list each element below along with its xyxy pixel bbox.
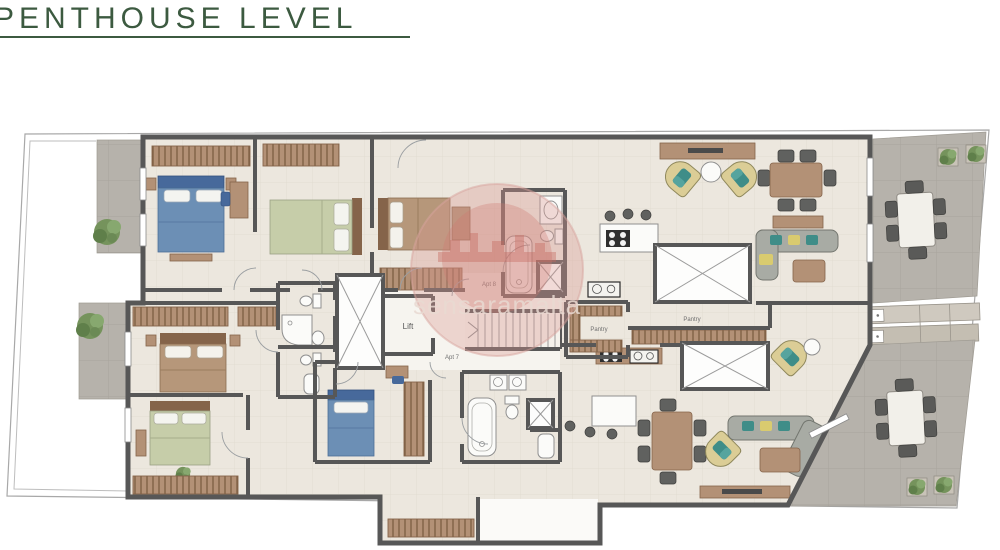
round-coffee-table [701, 162, 721, 182]
coffee-table [760, 448, 800, 472]
bar-stool [605, 211, 615, 221]
kitchen-sink-unit [588, 282, 620, 297]
stool [607, 429, 617, 439]
apt7-label: Apt 7 [445, 355, 460, 361]
pantry-label: Pantry [590, 327, 607, 333]
bed-headboard [160, 333, 226, 344]
bar-stool [623, 209, 633, 219]
shaft-bath-lower [528, 400, 553, 428]
floorplan-drawing: Pantry Pantry [0, 0, 1000, 550]
bed-headboard [378, 198, 388, 250]
bed-headboard [158, 176, 224, 188]
console-table [773, 216, 823, 228]
plant-icon [907, 478, 927, 496]
bar-stool [641, 210, 651, 220]
plant-icon [966, 145, 986, 163]
coffee-table [793, 260, 825, 282]
desk-chair [392, 376, 404, 384]
stool [585, 427, 595, 437]
bed-headboard [352, 198, 362, 255]
plant-icon [938, 148, 958, 166]
shaft-core [337, 275, 383, 368]
sink [312, 331, 324, 345]
watermark-text: sensaramalta [413, 290, 581, 320]
bed-headboard [150, 401, 210, 411]
terrace-upper-right [873, 132, 986, 303]
shaft-upper-right [655, 245, 750, 302]
floorplan-page: PENTHOUSE LEVEL [0, 0, 1000, 550]
stool [565, 421, 575, 431]
desk [230, 182, 248, 218]
pantry-label: Pantry [683, 317, 700, 323]
shower-tub [538, 434, 554, 458]
round-side-table [804, 339, 820, 355]
shaft-lower-right [682, 343, 768, 389]
kitchen-sink-unit [630, 350, 658, 363]
rear-block-floor [480, 499, 598, 541]
lift-label: Lift [403, 322, 414, 331]
watermark: sensaramalta [411, 184, 583, 356]
desk-chair [221, 192, 230, 206]
kitchen-island [592, 396, 636, 426]
plant-icon [934, 476, 954, 494]
toilet [505, 396, 519, 419]
shower [282, 315, 312, 345]
